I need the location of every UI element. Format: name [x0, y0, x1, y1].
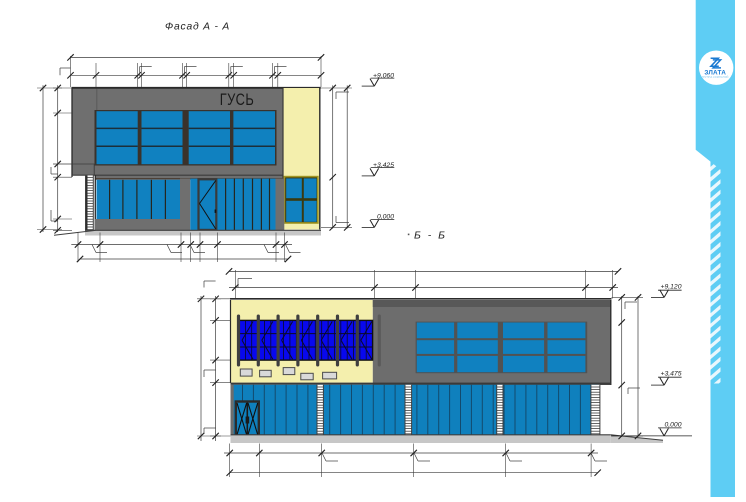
svg-text:Фасад А - А: Фасад А - А — [165, 22, 230, 33]
svg-text:+3,475: +3,475 — [661, 371, 682, 378]
svg-text:+9,120: +9,120 — [661, 284, 682, 291]
svg-text:0,000: 0,000 — [664, 421, 681, 428]
svg-text:ГУСЬ: ГУСЬ — [220, 92, 254, 110]
svg-text:Б - Б: Б - Б — [414, 230, 447, 242]
svg-text:ГРУППА КОМПАНИЙ: ГРУППА КОМПАНИЙ — [702, 76, 729, 79]
